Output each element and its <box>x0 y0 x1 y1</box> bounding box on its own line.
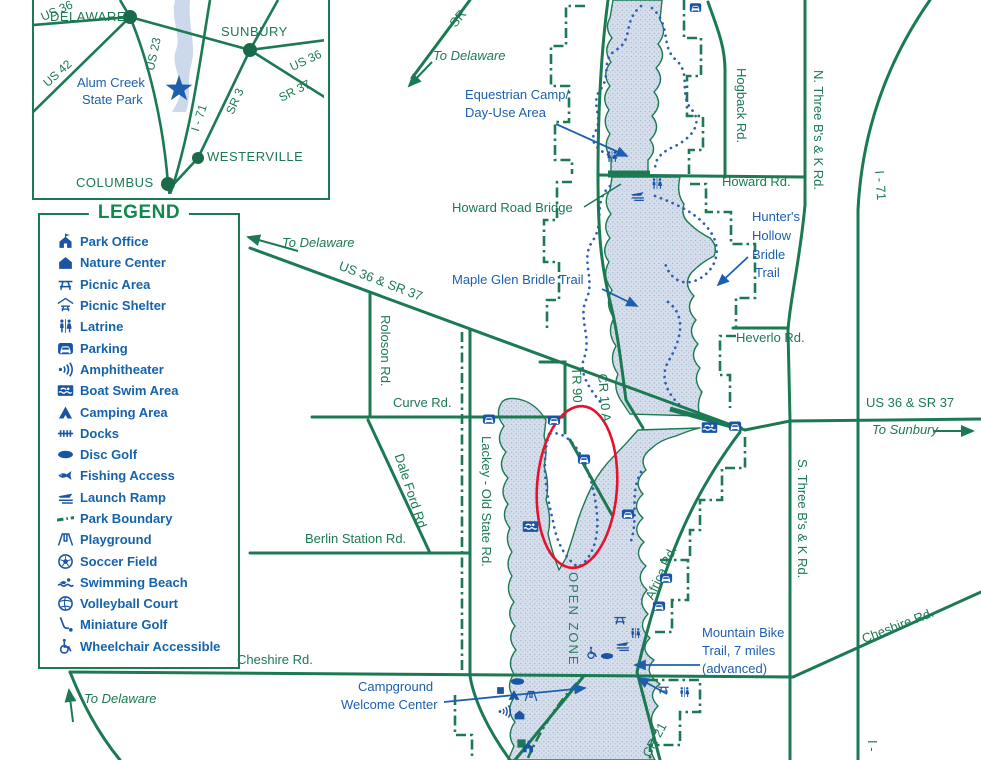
nature-center-icon <box>513 708 526 726</box>
label-cr-21: CR 21 <box>640 720 670 760</box>
label-cheshire-rd-east: Cheshire Rd. <box>860 606 936 647</box>
marker-square-icon <box>496 682 505 700</box>
latrine-icon <box>650 177 664 196</box>
parking-icon <box>621 507 635 526</box>
parking-icon <box>50 340 80 357</box>
legend-title: LEGEND <box>89 202 189 224</box>
legend-item-docks: Docks <box>50 423 234 444</box>
bridle-trails <box>545 6 717 567</box>
road-welcome-drive <box>515 677 583 760</box>
disc-golf-icon <box>510 674 525 694</box>
campground-callout <box>444 688 585 702</box>
latrine-icon <box>629 627 642 645</box>
label-us36-sr37-east: US 36 & SR 37 <box>866 396 954 411</box>
legend-item-volleyball-court: Volleyball Court <box>50 593 234 614</box>
legend-item-label: Park Boundary <box>80 511 172 526</box>
legend-item-label: Amphitheater <box>80 362 164 377</box>
legend-item-label: Miniature Golf <box>80 617 167 632</box>
launch-ramp-icon <box>630 188 645 208</box>
label-mountain-bike-line2: Trail, 7 miles <box>702 644 775 659</box>
road-cr10a <box>598 0 643 428</box>
latrine-icon <box>50 318 80 335</box>
bridges <box>608 174 742 429</box>
road-howard <box>598 175 805 177</box>
legend-item-wheelchair-accessible: Wheelchair Accessible <box>50 636 234 657</box>
label-i71-top: I - 71 <box>871 170 888 201</box>
label-lackey-old-state-rd: Lackey - Old State Rd. <box>478 436 493 567</box>
label-hunters-hollow-line2: Hollow <box>752 229 791 244</box>
legend-item-soccer-field: Soccer Field <box>50 550 234 571</box>
label-roloson-rd: Roloson Rd. <box>377 315 392 387</box>
park-office-icon <box>50 233 80 250</box>
latrine-icon <box>678 686 691 704</box>
park-boundary-lines <box>455 0 755 760</box>
launch-ramp-icon <box>615 638 630 658</box>
legend-item-label: Fishing Access <box>80 468 175 483</box>
road-n-three-bs <box>788 0 805 420</box>
boat-swim-area-icon <box>701 419 718 441</box>
legend-item-label: Nature Center <box>80 255 166 270</box>
latrine-icon <box>605 150 619 169</box>
legend-item-miniature-golf: Miniature Golf <box>50 614 234 635</box>
label-open-zone: OPEN ZONE <box>565 572 580 667</box>
legend-item-fishing-access: Fishing Access <box>50 465 234 486</box>
road-i71 <box>858 0 930 760</box>
picnic-area-icon <box>50 276 80 293</box>
picnic-area-icon <box>613 613 627 632</box>
playground-icon <box>50 531 80 548</box>
label-campground-line2: Welcome Center <box>341 698 438 713</box>
park-map-page: { "map_title": "Alum Creek State Park", … <box>0 0 981 760</box>
amphitheater-icon <box>497 704 512 724</box>
lake-middle <box>605 177 716 416</box>
mountain-bike-callout-2 <box>638 678 667 694</box>
legend-item-label: Park Office <box>80 234 149 249</box>
label-to-delaware-bottom: To Delaware <box>84 692 157 707</box>
docks-icon <box>50 425 80 442</box>
parking-icon <box>482 412 496 431</box>
legend-item-park-boundary: Park Boundary <box>50 508 234 529</box>
legend-item-label: Picnic Area <box>80 277 150 292</box>
legend-item-label: Picnic Shelter <box>80 298 166 313</box>
label-mountain-bike-line3: (advanced) <box>702 662 767 677</box>
label-hunters-hollow-line4: Trail <box>755 266 780 281</box>
label-sr-partial: SR <box>447 7 470 30</box>
label-s-three-bs-k-rd: S. Three B's & K Rd. <box>794 459 809 578</box>
boat-swim-area-icon <box>522 518 539 540</box>
label-howard-road-bridge: Howard Road Bridge <box>452 201 573 216</box>
label-berlin-station-rd: Berlin Station Rd. <box>305 532 406 547</box>
road-dale-ford <box>368 420 430 553</box>
marker-square-green-icon <box>516 736 527 754</box>
disc-golf-icon <box>50 446 80 463</box>
label-maple-glen-bridle-trail: Maple Glen Bridle Trail <box>452 273 584 288</box>
parking-icon <box>659 571 673 590</box>
to-delaware-mid-arrow <box>248 237 298 251</box>
road-us36-sr37-diagonal <box>250 248 745 430</box>
legend-item-label: Camping Area <box>80 405 168 420</box>
equestrian-callout <box>556 124 627 156</box>
road-to-delaware-curve <box>70 672 120 760</box>
road-sr-stub <box>412 0 470 78</box>
legend-item-camping-area: Camping Area <box>50 401 234 422</box>
legend-item-label: Wheelchair Accessible <box>80 639 220 654</box>
to-delaware-bottom-arrow <box>69 690 73 722</box>
legend-item-launch-ramp: Launch Ramp <box>50 487 234 508</box>
miniature-golf-icon <box>50 616 80 633</box>
camping-area-icon <box>50 404 80 421</box>
label-heverlo-rd: Heverlo Rd. <box>736 331 805 346</box>
legend-item-boat-swim-area: Boat Swim Area <box>50 380 234 401</box>
legend-item-picnic-area: Picnic Area <box>50 274 234 295</box>
parking-icon <box>577 452 591 471</box>
howard-bridge-callout-line <box>584 184 621 207</box>
callout-arrows <box>444 124 748 702</box>
road-africa <box>637 432 740 672</box>
label-mountain-bike-line1: Mountain Bike <box>702 626 784 641</box>
us36-bridge-span <box>670 409 742 429</box>
picnic-shelter-icon <box>50 297 80 314</box>
boat-swim-area-icon <box>50 382 80 399</box>
label-i71-bottom: I - <box>864 740 879 752</box>
playground-icon <box>524 689 538 708</box>
launch-ramp-icon <box>50 489 80 506</box>
volleyball-court-icon <box>50 595 80 612</box>
lake-alum-creek <box>498 0 715 760</box>
label-equestrian-camp-line1: Equestrian Camp/ <box>465 88 569 103</box>
lake-south <box>498 398 700 760</box>
hunters-hollow-callout <box>718 257 748 285</box>
label-cheshire-rd-west: Cheshire Rd. <box>237 653 313 668</box>
legend-item-amphitheater: Amphitheater <box>50 359 234 380</box>
label-curve-rd: Curve Rd. <box>393 396 452 411</box>
road-hogback <box>708 2 725 177</box>
amphitheater-icon <box>50 361 80 378</box>
soccer-field-icon <box>50 553 80 570</box>
wheelchair-accessible-icon <box>585 646 599 665</box>
legend-item-label: Docks <box>80 426 119 441</box>
legend-panel: LEGEND Park OfficeNature CenterPicnic Ar… <box>38 213 240 669</box>
legend-item-picnic-shelter: Picnic Shelter <box>50 295 234 316</box>
road-lackey-old-state <box>470 330 510 760</box>
legend-item-latrine: Latrine <box>50 316 234 337</box>
legend-item-label: Launch Ramp <box>80 490 166 505</box>
label-dale-ford-rd: Dale Ford Rd. <box>391 452 430 534</box>
road-cheshire-west <box>70 672 793 677</box>
parking-icon <box>547 413 561 432</box>
disc-golf-icon <box>600 649 614 668</box>
label-campground-line1: Campground <box>358 680 433 695</box>
road-cr21 <box>637 672 660 760</box>
label-to-sunbury: To Sunbury <box>872 423 938 438</box>
road-tr90 <box>540 362 612 515</box>
legend-item-label: Parking <box>80 341 128 356</box>
label-hunters-hollow-line3: Bridle <box>752 248 785 263</box>
legend-item-nature-center: Nature Center <box>50 252 234 273</box>
legend-item-label: Volleyball Court <box>80 596 178 611</box>
legend-item-label: Playground <box>80 532 152 547</box>
to-delaware-top-arrow <box>409 62 432 86</box>
inset-locator-map <box>32 0 330 200</box>
wheelchair-accessible-icon <box>50 638 80 655</box>
legend-item-list: Park OfficeNature CenterPicnic AreaPicni… <box>50 231 234 657</box>
label-equestrian-camp-line2: Day-Use Area <box>465 106 546 121</box>
legend-item-disc-golf: Disc Golf <box>50 444 234 465</box>
legend-item-playground: Playground <box>50 529 234 550</box>
legend-item-label: Swimming Beach <box>80 575 188 590</box>
highlight-ellipse <box>531 403 622 570</box>
parking-icon <box>728 419 742 438</box>
legend-item-swimming-beach: Swimming Beach <box>50 572 234 593</box>
legend-item-label: Latrine <box>80 319 123 334</box>
park-office-icon <box>521 740 535 759</box>
label-us36-sr37-diagonal: US 36 & SR 37 <box>337 259 425 305</box>
maple-glen-callout <box>602 289 637 306</box>
legend-item-label: Boat Swim Area <box>80 383 179 398</box>
park-boundary-icon <box>50 510 80 527</box>
label-hogback-rd: Hogback Rd. <box>733 68 748 143</box>
lake-north <box>605 0 664 172</box>
label-howard-rd: Howard Rd. <box>722 175 791 190</box>
road-cheshire-east <box>793 592 981 677</box>
label-hunters-hollow-line1: Hunter's <box>752 210 800 225</box>
parking-icon <box>689 1 702 19</box>
fishing-access-icon <box>50 467 80 484</box>
label-to-delaware-mid: To Delaware <box>282 236 355 251</box>
label-cr-10-a: CR 10 A <box>594 373 613 423</box>
label-to-delaware-top: To Delaware <box>433 49 506 64</box>
picnic-area-icon <box>657 683 670 701</box>
legend-item-parking: Parking <box>50 337 234 358</box>
road-us36-sr37-east <box>745 419 981 430</box>
camping-area-icon <box>507 688 521 707</box>
legend-item-park-office: Park Office <box>50 231 234 252</box>
nature-center-icon <box>50 254 80 271</box>
swimming-beach-icon <box>50 574 80 591</box>
label-n-three-bs-k-rd: N. Three B's & K Rd. <box>810 70 825 190</box>
label-africa-rd: Africa Rd. <box>643 544 681 602</box>
parking-icon <box>652 599 666 618</box>
label-tr-90: TR 90 <box>568 367 584 403</box>
legend-item-label: Soccer Field <box>80 554 157 569</box>
legend-item-label: Disc Golf <box>80 447 137 462</box>
